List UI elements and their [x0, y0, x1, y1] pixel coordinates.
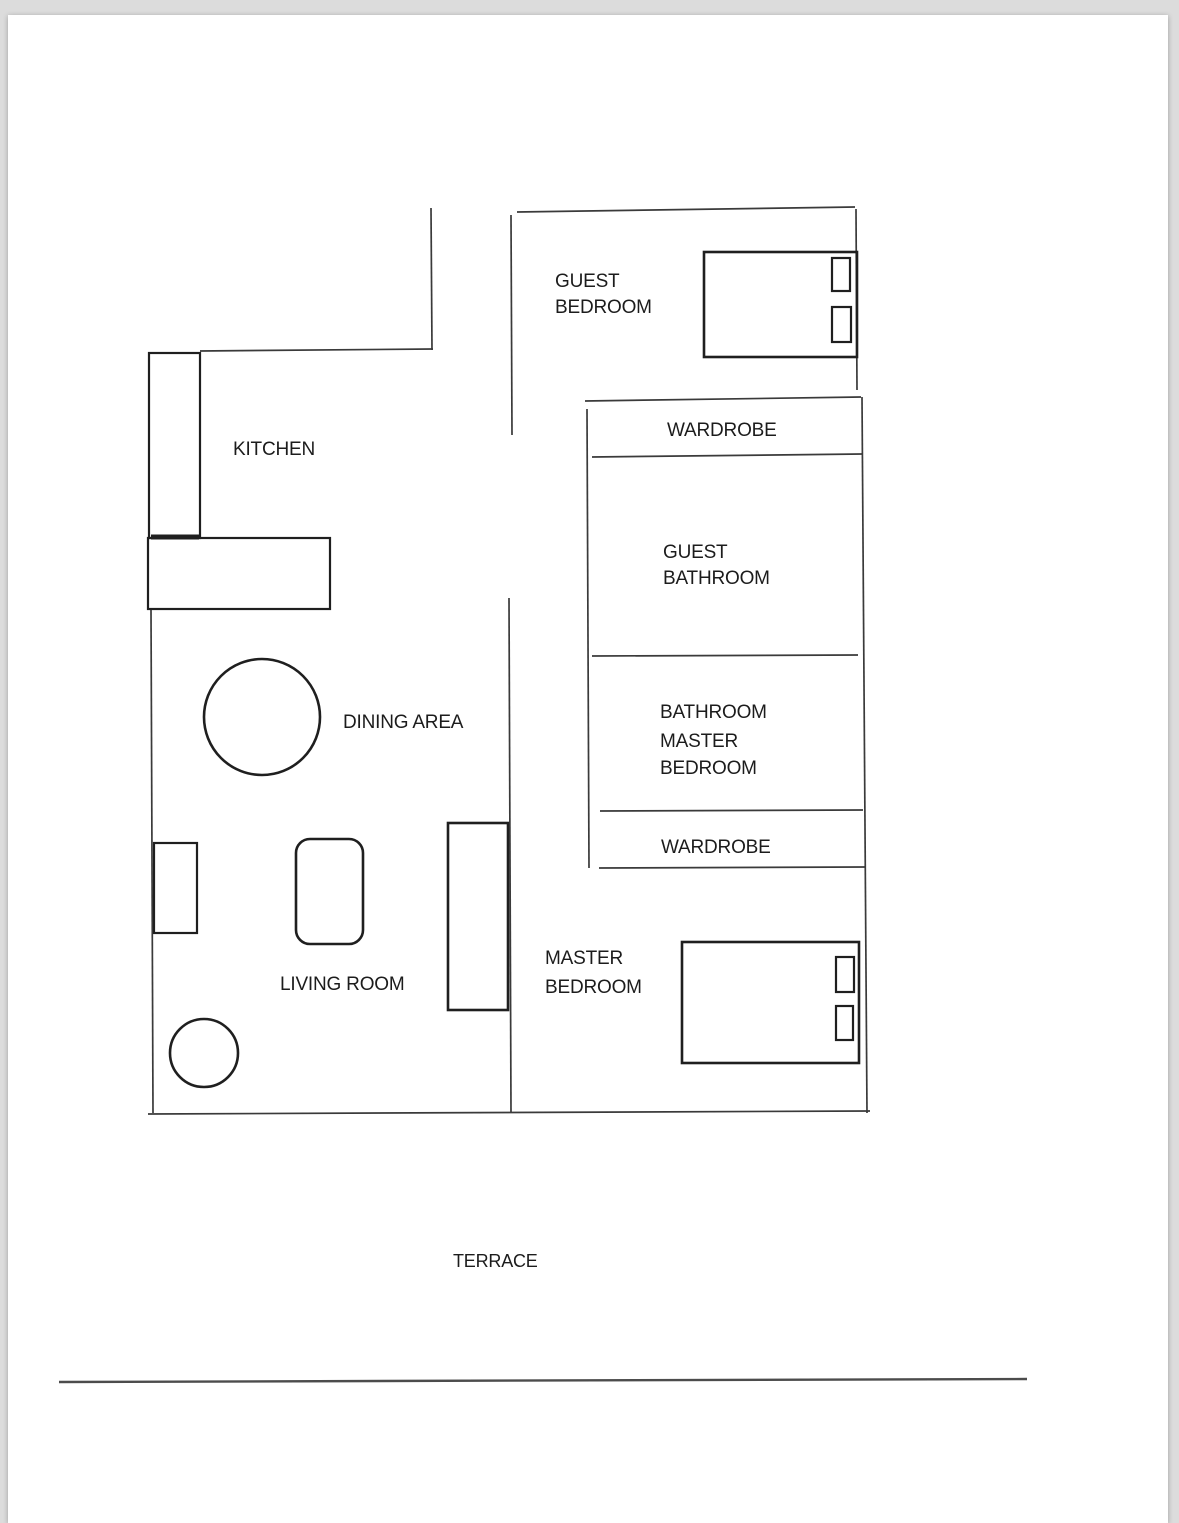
guest-bedroom-label-line2: BEDROOM [555, 297, 652, 318]
kitchen-counter-vertical [149, 353, 200, 538]
armchair [154, 843, 197, 933]
master-bed [682, 942, 859, 1063]
side-table-round [170, 1019, 238, 1087]
master-bed-pillow-1 [836, 957, 854, 992]
guest-bedroom-label-line1: GUEST [555, 271, 620, 292]
master-bathroom-label-line2: MASTER [660, 731, 738, 752]
sideboard [448, 823, 508, 1010]
wall-guest-bedroom-left [511, 215, 512, 435]
master-bedroom-label-line1: MASTER [545, 948, 623, 969]
master-bathroom-label-line3: BEDROOM [660, 758, 757, 779]
guest-bathroom-label-line1: GUEST [663, 542, 728, 563]
wall-right-outer [862, 397, 867, 1113]
coffee-table [296, 839, 363, 944]
kitchen-counter-horizontal [148, 538, 330, 609]
wall-entry-vertical [431, 208, 432, 350]
room-labels: GUEST BEDROOM KITCHEN WARDROBE GUEST BAT… [233, 271, 777, 1271]
dining-table-round [204, 659, 320, 775]
terrace-label: TERRACE [453, 1251, 538, 1271]
wardrobe-bottom-label: WARDROBE [661, 837, 771, 858]
wall-bath-column-left [587, 409, 589, 868]
wall-wardrobe-top [585, 397, 861, 401]
wall-wardrobe2-top [600, 810, 863, 811]
document-viewer: GUEST BEDROOM KITCHEN WARDROBE GUEST BAT… [0, 0, 1179, 1523]
guest-bed-pillow-2 [832, 307, 851, 342]
guest-bathroom-label-line2: BATHROOM [663, 568, 770, 589]
kitchen-label: KITCHEN [233, 439, 315, 460]
master-bedroom-label-line2: BEDROOM [545, 977, 642, 998]
wall-bathroom-divider [592, 655, 858, 656]
master-bed-pillow-2 [836, 1006, 853, 1040]
wall-guest-bedroom-top [517, 207, 855, 212]
floor-plan-drawing: GUEST BEDROOM KITCHEN WARDROBE GUEST BAT… [0, 0, 1179, 1523]
guest-bed-pillow-1 [832, 258, 850, 291]
master-bathroom-label-line1: BATHROOM [660, 702, 767, 723]
dining-area-label: DINING AREA [343, 712, 464, 733]
wall-wardrobe-bottom [592, 454, 862, 457]
terrace-boundary-line [59, 1379, 1027, 1382]
wall-left-outer [151, 609, 153, 1113]
furniture [148, 252, 859, 1087]
wall-kitchen-top [200, 349, 433, 351]
wall-wardrobe2-bottom [599, 867, 866, 868]
wall-bottom-outer [148, 1111, 870, 1114]
wardrobe-top-label: WARDROBE [667, 420, 777, 441]
living-room-label: LIVING ROOM [280, 974, 404, 995]
